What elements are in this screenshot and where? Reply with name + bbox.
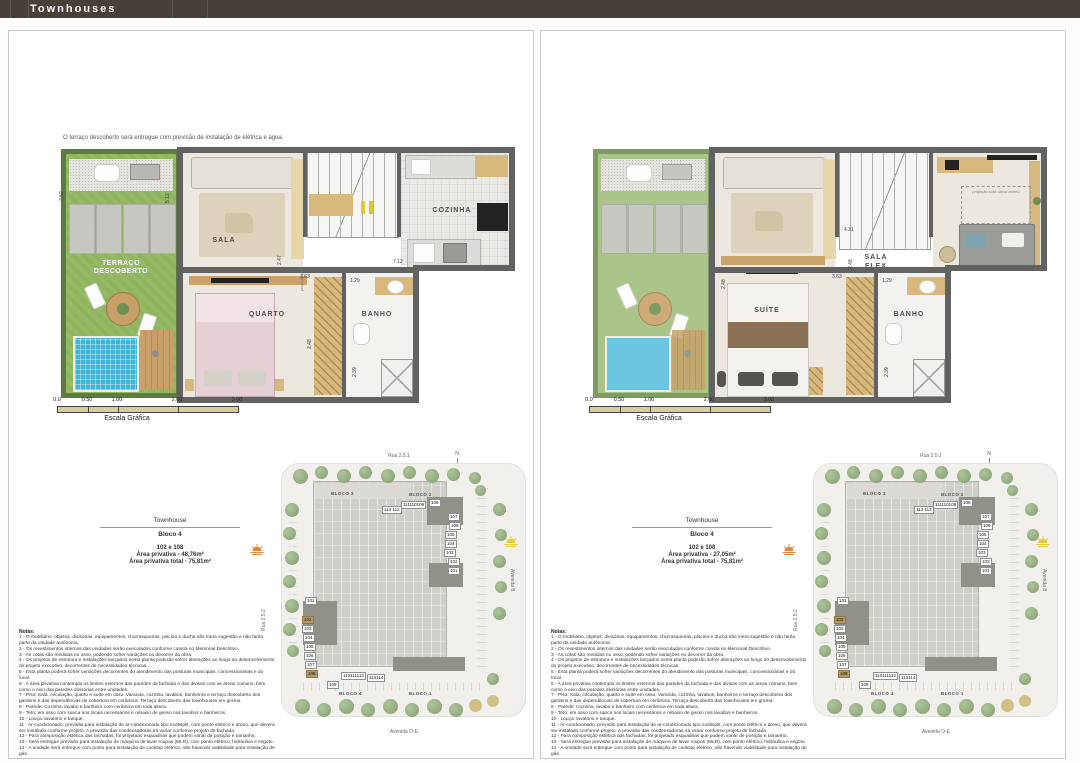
bed [195,293,275,397]
note-line: 7 - Piso: Sala, circulação, quarto e suí… [551,693,807,705]
street-left: Rua 2.5.2 [793,609,799,631]
coffee-table [755,211,783,231]
ground-floor-panel: O terraço descoberto será entregue com p… [8,30,534,759]
page-title: Townhouses [30,3,116,15]
tree-icon [285,599,299,613]
note-line: 7 - Piso: Sala, circulação, quarto e suí… [19,693,275,705]
info-title: Townhouse [94,517,246,524]
uchip: 101 [448,567,460,575]
cushion [1002,233,1024,247]
tick: 2.00 [704,397,715,403]
tree-icon [1025,555,1038,568]
wall [709,267,949,273]
info-units: 102 e 108 [626,545,778,551]
dim: 5.12 [165,193,171,203]
sun-icon [1035,535,1051,548]
dim: 2.39 [352,367,358,377]
tree-icon [847,466,860,479]
shower-box [381,359,413,397]
table-plant [117,303,129,315]
tree-icon [819,645,831,657]
basin [387,280,404,294]
note-line: 14 - A unidade será entregue com ponto p… [551,746,807,758]
room-label-quarto: QUARTO [237,311,297,318]
info-area-total: Área privativa total - 75,81m² [94,559,246,565]
tick: 0.50 [614,397,625,403]
wall [835,147,839,237]
unit-info-box: Townhouse Bloco 4 102 e 108 Área privati… [626,517,778,565]
pillow [738,372,764,386]
dim: 2.52 [59,191,65,201]
wall [509,147,515,271]
note-line: 4 - Os projetos de estrutura e instalaçõ… [551,658,807,670]
tree-icon [981,703,995,717]
wood-deck [672,330,705,390]
uchip: 104 [445,540,457,548]
uchip: 101 [980,567,992,575]
tree-icon [1007,485,1018,496]
pillow [238,370,266,386]
info-area: Área privativa - 48,76m² [94,552,246,558]
shower-box [913,359,945,397]
terrace-note: O terraço descoberto será entregue com p… [63,135,283,141]
dim: 1.29 [350,278,360,284]
tree-icon [1027,581,1039,593]
dim: 2.48 [848,259,854,269]
garden-sink [626,164,652,182]
uchip: 103 [834,625,846,633]
wall [709,147,715,403]
plant [1033,197,1041,205]
uchip: 111110109 [933,501,958,509]
tree-icon [449,703,463,717]
tree-icon [295,699,310,714]
notes: Notas: 1 - O mobiliário, objetos, divisó… [551,629,807,758]
tree-icon [959,699,974,714]
title-bar-divider [28,0,29,18]
uchip: 108 [961,499,973,507]
tree-icon [817,503,831,517]
wall [397,147,401,237]
tree-icon [317,703,331,717]
street-left: Rua 2.5.2 [261,609,267,631]
uchip: 104 [835,634,847,642]
tree-icon [957,469,971,483]
room-label-banho: BANHO [879,311,939,318]
info-units: 102 e 108 [94,545,246,551]
bloco-1-label: BLOCO 1 [941,691,964,696]
uchip: 109 [859,681,871,689]
toilet [353,323,370,345]
uchip: 105 [445,531,457,539]
sunset-icon [781,543,797,556]
uchip: 106 [981,522,993,530]
tree-icon [383,699,398,714]
uchip: 108 [306,670,318,678]
barbecue-grill [130,164,160,180]
upper-floor-panel: projeção sofá cama aberto SALAFLEX SUÍTE… [540,30,1066,759]
tree-icon [469,472,481,484]
tree-icon [339,699,354,714]
wall [945,265,1047,271]
bedroom-bench [809,367,823,395]
room-label-banho: BANHO [347,311,407,318]
tree-icon [915,699,930,714]
cooktop [443,243,467,263]
tick: 1.00 [112,397,123,403]
uchip: 107 [980,513,992,521]
uchip: 103 [976,549,988,557]
wall [177,147,183,403]
decor-item [361,201,365,214]
note-line: 2 - Os revestimentos internos das unidad… [551,647,807,653]
uchip: 107 [837,661,849,669]
uchip: 106 [449,522,461,530]
pillow [204,370,232,386]
uchip: 105 [304,643,316,651]
tree-icon [493,555,506,568]
tick: 0.0 [53,397,61,403]
kitchen-sink [411,159,431,175]
uchip: 113114 [367,674,385,682]
tick: 3.00 [232,397,243,403]
scale-bar [589,406,771,413]
tree-icon [1001,472,1013,484]
cushion [966,233,986,247]
info-title: Townhouse [626,517,778,524]
bench [717,371,726,387]
note-line: 1 - O mobiliário, objetos, divisórias, e… [551,635,807,647]
uchip: 106 [836,652,848,660]
info-block: Bloco 4 [94,531,246,538]
tree-icon [283,575,296,588]
bloco-1-label: BLOCO 1 [409,691,432,696]
street-top: Rua 2.5.1 [866,453,996,459]
tree-icon [487,673,499,685]
site-plan: Rua 2.5.1 N BLOCO 3 BLOCO 2 BLOCO 4 BLOC… [279,451,526,746]
dim: 2.39 [884,367,890,377]
info-area: Área privativa - 27,05m² [626,552,778,558]
parking-strip [1009,497,1019,667]
tree-icon [381,469,395,483]
uchip: 113114 [899,674,917,682]
desk-monitor [945,160,959,170]
uchip: 113 112 [382,506,402,514]
brochure-page: { "header": { "title": "Townhouses" }, "… [0,0,1080,763]
nightstand [275,379,284,391]
tree-icon [475,485,486,496]
tree-icon [817,599,831,613]
uchip: 102 [980,558,992,566]
note-line: 5 - Esta planta poderá sofrer variações … [551,670,807,682]
tree-icon [487,695,499,707]
bloco-2-label: BLOCO 2 [409,492,432,497]
tree-icon [285,551,299,565]
bloco-4-label: BLOCO 4 [871,691,894,696]
info-block: Bloco 4 [626,531,778,538]
tree-icon [287,645,299,657]
uchip: 101 [305,597,317,605]
info-area-total: Área privativa total - 75,81m² [626,559,778,565]
tree-icon [315,466,328,479]
room-label-sala: SALA [194,237,254,244]
wood-deck [140,330,173,390]
uchip: 104 [977,540,989,548]
wardrobe [314,277,342,395]
sofa-bed [959,224,1035,268]
scale-bar [57,406,239,413]
bloco-3-label: BLOCO 3 [331,491,354,496]
tree-icon [1001,699,1014,712]
street-top: Rua 2.5.1 [334,453,464,459]
building-wing [315,483,411,499]
dim: 3.63 [300,274,310,280]
sideboard [721,256,825,265]
notes-list: 1 - O mobiliário, objetos, divisórias, e… [551,635,807,758]
wall [177,147,515,153]
dim: 1.29 [882,278,892,284]
pool [73,336,139,392]
wall-tv [987,155,1037,160]
wall [1041,147,1047,271]
building-wing [925,657,997,671]
tree-icon [1025,503,1038,516]
parking-strip [477,497,487,667]
tick: 3.00 [764,397,775,403]
bed [727,283,809,397]
sofa [723,157,825,189]
uchip: 111110109 [401,501,426,509]
title-bar: Townhouses [0,0,1080,18]
note-line: 6 - A área privativa contempla os limite… [19,682,275,694]
note-line: 11 - Ar-condicionado: previsão para inst… [551,723,807,735]
tree-icon [447,468,460,481]
tree-icon [285,503,299,517]
nightstand [185,379,194,391]
tree-icon [869,469,883,483]
site-plan: Rua 2.5.1 N BLOCO 3 BLOCO 2 BLOCO 4 BLOC… [811,451,1058,746]
note-line: 5 - Esta planta poderá sofrer variações … [19,670,275,682]
tree-icon [283,623,296,636]
paver [150,204,176,254]
note-line: 4 - Os projetos de estrutura e instalaçõ… [19,658,275,670]
tree-icon [871,699,886,714]
island-sink [413,243,435,263]
round-table [638,292,672,326]
sofa [191,157,293,189]
scale-label: Escala Gráfica [57,415,197,422]
uchip: 102 [302,616,314,624]
pool [605,336,671,392]
dim: 4.31 [844,227,854,233]
basin [919,280,936,294]
terrace: TERRAÇODESCOBERTO [61,149,181,398]
tree-icon [815,527,828,540]
table-plant [649,303,661,315]
tree-icon [817,551,831,565]
note-line: 14 - A unidade será entregue com ponto p… [19,746,275,758]
tree-icon [359,466,372,479]
coffee-table [225,213,253,233]
street-bottom: Avenida O-E [354,729,454,735]
notes-list: 1 - O mobiliário, objetos, divisórias, e… [19,635,275,758]
lounge-chair [84,282,107,310]
stair-cabinet [309,194,353,216]
paver [628,204,654,254]
uchip: 104 [303,634,315,642]
tree-icon [1025,607,1038,620]
tree-icon [893,703,907,717]
building-wing [847,483,943,499]
paver [655,204,681,254]
tree-icon [493,503,506,516]
uchip: 102 [448,558,460,566]
garden-sink [94,164,120,182]
dim: 2.48 [721,279,727,289]
bloco-3-label: BLOCO 3 [863,491,886,496]
graphic-scale: 0.00.501.002.003.00 Escala Gráfica [589,397,799,425]
wall [874,273,878,403]
wall [177,267,417,273]
decor-item [369,201,373,214]
wall [709,147,1047,153]
title-bar-divider [172,0,173,18]
street-bottom: Avenida O-E [886,729,986,735]
outdoor-shower [684,350,691,357]
tree-icon [293,469,308,484]
paver [69,204,95,254]
tree-icon [337,469,351,483]
tree-icon [891,466,904,479]
terrace [593,149,713,398]
paver [96,204,122,254]
tree-icon [403,466,416,479]
pillow [772,372,798,386]
kitchen-bench [475,155,508,177]
tree-icon [815,623,828,636]
lounge-chair [616,282,639,310]
barbecue-grill [662,164,692,180]
wall [303,147,307,237]
bloco-2-label: BLOCO 2 [941,492,964,497]
graphic-scale: 0.00.501.002.003.00 Escala Gráfica [57,397,267,425]
tree-icon [979,468,992,481]
tv [211,278,269,283]
tree-icon [405,703,419,717]
tree-icon [815,575,828,588]
uchip: 103 [302,625,314,633]
uchip: 107 [305,661,317,669]
uchip: 106 [304,652,316,660]
tree-icon [827,699,842,714]
stairs [839,152,931,250]
tree-icon [495,581,507,593]
room-label-suite: SUÍTE [737,307,797,314]
paver [601,204,627,254]
tree-icon [849,703,863,717]
tick: 1.00 [644,397,655,403]
uchip: 105 [836,643,848,651]
sun-icon [503,535,519,548]
tree-icon [425,469,439,483]
uchip: 102 [834,616,846,624]
uchip: 101 [837,597,849,605]
dim: 2.48 [307,339,313,349]
sunset-icon [249,543,265,556]
dim: 3.63 [832,274,842,280]
street-right: Avenida 8 [509,569,515,591]
wardrobe [846,277,874,395]
sofa-bed-projection: projeção sofá cama aberto [961,186,1031,224]
outdoor-shower [152,350,159,357]
tree-icon [937,703,951,717]
tree-icon [493,607,506,620]
paver [682,204,708,254]
title-bar-divider [207,0,208,18]
wall [342,273,346,403]
tree-icon [935,466,948,479]
uchip: 108 [429,499,441,507]
scale-label: Escala Gráfica [589,415,729,422]
note-line: 2 - Os revestimentos internos das unidad… [19,647,275,653]
building-wing [393,657,465,671]
wall [945,267,951,403]
tree-icon [913,469,927,483]
uchip: 108 [838,670,850,678]
note-line: 6 - A área privativa contempla os limite… [551,682,807,694]
dim: 7.12 [393,259,403,265]
tree-icon [427,699,442,714]
tree-icon [283,527,296,540]
wall [413,265,515,271]
uchip: 109 [327,681,339,689]
room-label-cozinha: COZINHA [417,207,487,214]
uchip: 107 [448,513,460,521]
bloco-4-label: BLOCO 4 [339,691,362,696]
dim: 2.47 [277,255,283,265]
round-table [106,292,140,326]
street-right: Avenida 8 [1041,569,1047,591]
wall [929,147,933,237]
tick: 0.0 [585,397,593,403]
uchip: 105 [977,531,989,539]
uchip: 110111112 [873,672,898,680]
note-line: 1 - O mobiliário, objetos, divisórias, e… [19,635,275,647]
tick: 0.50 [82,397,93,403]
tree-icon [825,469,840,484]
wall [413,267,419,403]
title-bar-divider [10,0,11,18]
uchip: 110111112 [341,672,366,680]
tree-icon [469,699,482,712]
tree-icon [361,703,375,717]
floor-tray [939,246,956,263]
tree-icon [1019,673,1031,685]
note-line: 11 - Ar-condicionado: previsão para inst… [19,723,275,735]
unit-info-box: Townhouse Bloco 4 102 e 108 Área privati… [94,517,246,565]
tick: 2.00 [172,397,183,403]
terrace-label: TERRAÇODESCOBERTO [66,260,176,277]
tree-icon [1019,695,1031,707]
toilet [885,323,902,345]
uchip: 113 112 [914,506,934,514]
uchip: 103 [444,549,456,557]
notes: Notas: 1 - O mobiliário, objetos, divisó… [19,629,275,758]
paver [123,204,149,254]
bed-runner [728,322,808,348]
